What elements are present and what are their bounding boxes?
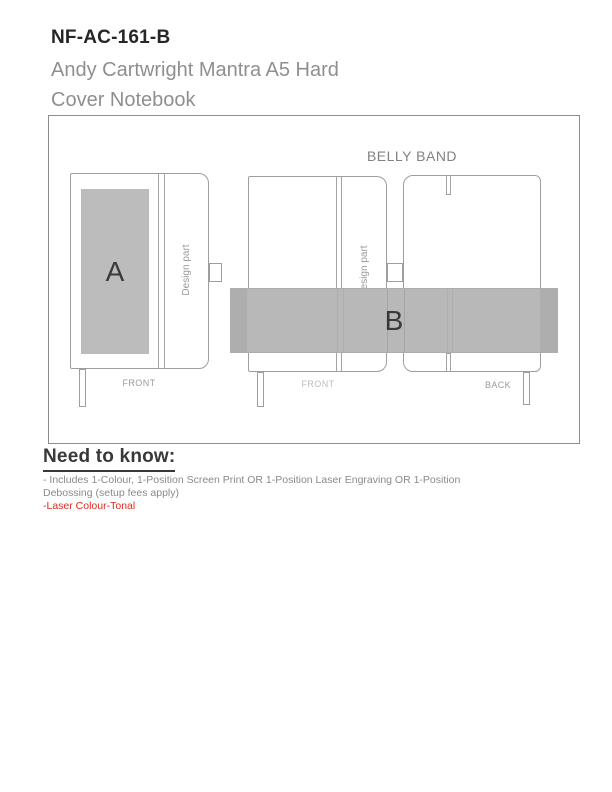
spec-sheet-page: NF-AC-161-B Andy Cartwright Mantra A5 Ha… bbox=[0, 0, 612, 792]
laser-colour-note: -Laser Colour-Tonal bbox=[43, 500, 533, 513]
band-overlap-line bbox=[337, 289, 338, 352]
front-notebook-bookmark-ribbon bbox=[79, 369, 86, 407]
front-notebook-caption: FRONT bbox=[109, 378, 169, 388]
front-notebook-closure-tab bbox=[209, 263, 222, 282]
back-notebook-elastic-top bbox=[446, 175, 451, 195]
product-name-line-2: Cover Notebook bbox=[51, 85, 339, 115]
front-notebook-elastic-band bbox=[158, 173, 165, 369]
middle-notebook-closure-tab bbox=[387, 263, 403, 282]
belly-band-left-end bbox=[231, 289, 247, 352]
product-name: Andy Cartwright Mantra A5 Hard Cover Not… bbox=[51, 55, 339, 115]
band-overlap-line bbox=[387, 289, 388, 352]
product-name-line-1: Andy Cartwright Mantra A5 Hard bbox=[51, 55, 339, 85]
band-overlap-line bbox=[447, 289, 448, 352]
front-notebook-design-part-label: Design part bbox=[181, 240, 193, 300]
need-to-know-notes: - Includes 1-Colour, 1-Position Screen P… bbox=[43, 474, 533, 513]
need-to-know-heading: Need to know: bbox=[43, 446, 175, 472]
product-diagram: BELLY BAND A Design part FRONT Design pa… bbox=[48, 115, 580, 444]
belly-band: B bbox=[230, 288, 558, 353]
belly-band-right-end bbox=[540, 289, 557, 352]
product-code: NF-AC-161-B bbox=[51, 27, 170, 49]
middle-notebook-caption: FRONT bbox=[288, 379, 348, 389]
middle-notebook-bookmark-ribbon bbox=[257, 372, 264, 407]
band-overlap-line bbox=[452, 289, 453, 352]
print-area-a: A bbox=[81, 189, 149, 354]
print-area-a-label: A bbox=[106, 256, 125, 288]
back-notebook-caption: BACK bbox=[468, 380, 528, 390]
belly-band-title: BELLY BAND bbox=[342, 148, 482, 164]
back-notebook-elastic-bottom bbox=[446, 353, 451, 372]
note-line-2: Debossing (setup fees apply) bbox=[43, 487, 533, 500]
band-overlap-line bbox=[404, 289, 405, 352]
band-overlap-line bbox=[343, 289, 344, 352]
note-line-1: - Includes 1-Colour, 1-Position Screen P… bbox=[43, 474, 533, 487]
